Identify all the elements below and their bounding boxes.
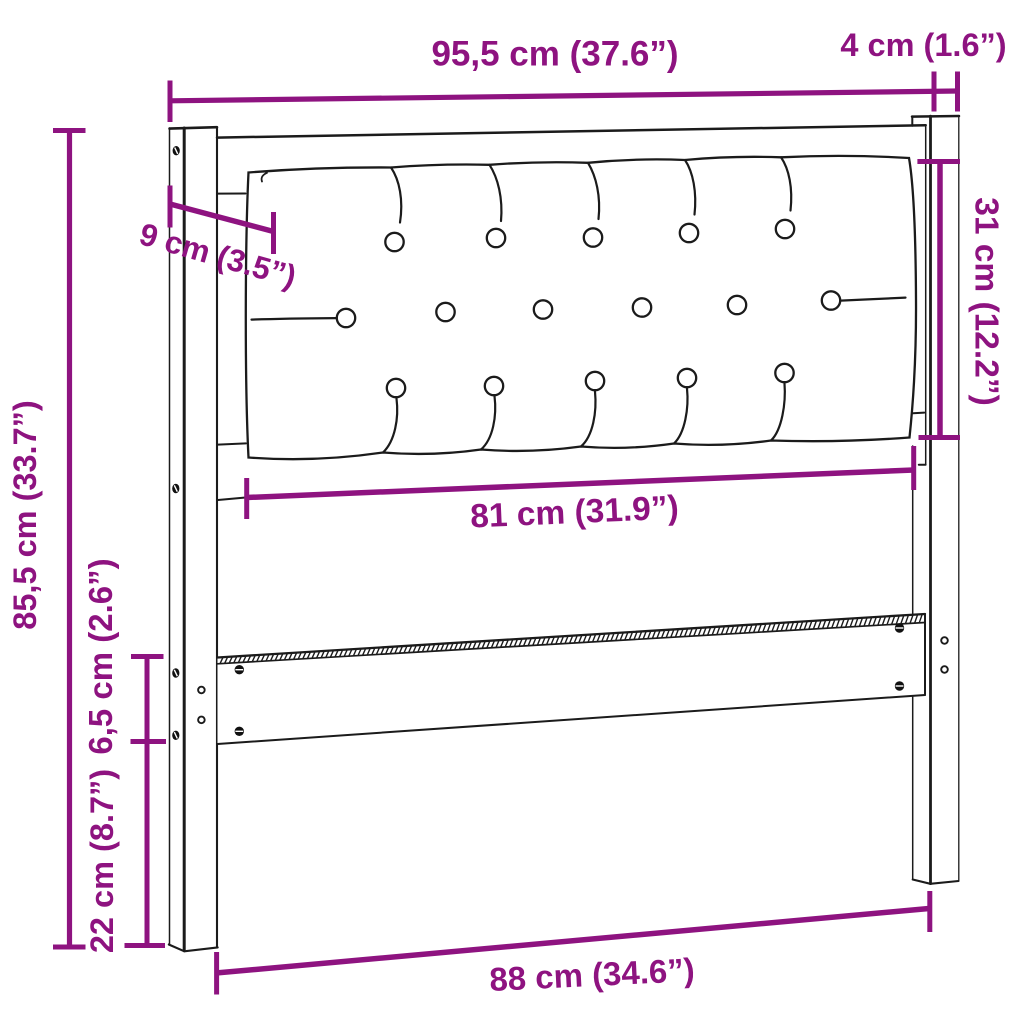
svg-text:22 cm (8.7”): 22 cm (8.7”): [84, 769, 120, 953]
svg-text:6,5 cm (2.6”): 6,5 cm (2.6”): [82, 558, 119, 754]
svg-text:85,5 cm (33.7”): 85,5 cm (33.7”): [7, 400, 43, 629]
svg-text:95,5 cm (37.6”): 95,5 cm (37.6”): [431, 35, 678, 74]
svg-text:31 cm (12.2”): 31 cm (12.2”): [968, 197, 1005, 406]
svg-text:4 cm (1.6”): 4 cm (1.6”): [840, 27, 1006, 63]
